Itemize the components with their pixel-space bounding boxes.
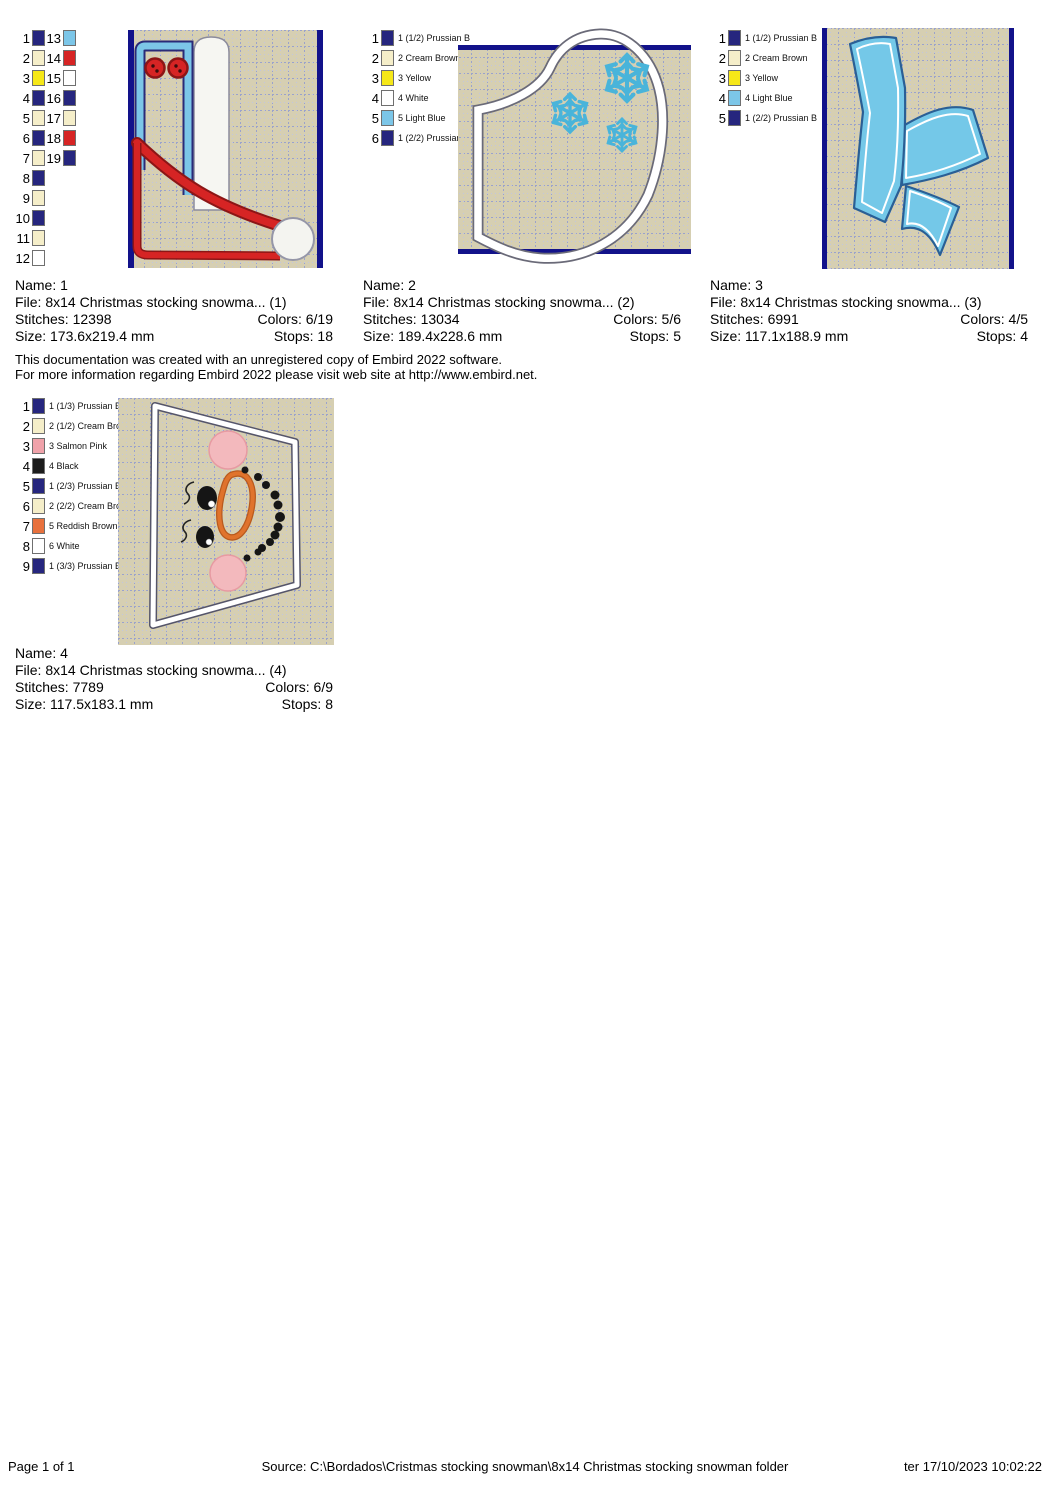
hoop-edge-left [822, 28, 827, 269]
thread-color-swatch [381, 30, 394, 46]
thread-color-swatch [32, 170, 45, 186]
design-1-info: Name: 1 File: 8x14 Christmas stocking sn… [15, 277, 333, 345]
design-file: File: 8x14 Christmas stocking snowma... … [15, 294, 333, 311]
thread-row: 7 [14, 148, 45, 168]
thread-color-swatch [63, 110, 76, 126]
thread-color-swatch [728, 50, 741, 66]
thread-number: 6 [363, 131, 379, 146]
thread-row: 4 [14, 88, 45, 108]
hat-white-band [194, 37, 229, 210]
design-stitches: Stitches: 12398 [15, 311, 112, 328]
thread-number: 7 [14, 519, 30, 534]
thread-number: 4 [14, 91, 30, 106]
design-file: File: 8x14 Christmas stocking snowma... … [363, 294, 681, 311]
design-size: Size: 117.1x188.9 mm [710, 328, 848, 345]
thread-number: 6 [14, 499, 30, 514]
thread-label: 4 Light Blue [745, 93, 793, 103]
thread-color-swatch [728, 110, 741, 126]
design-3-info: Name: 3 File: 8x14 Christmas stocking sn… [710, 277, 1028, 345]
thread-row: 3 [14, 68, 45, 88]
thread-number: 10 [14, 211, 30, 226]
thread-color-swatch [32, 50, 45, 66]
design-size: Size: 189.4x228.6 mm [363, 328, 502, 345]
thread-row: 11 (1/2) Prussian B [363, 28, 470, 48]
thread-number: 6 [14, 131, 30, 146]
thread-row: 18 [45, 128, 76, 148]
thread-number: 4 [363, 91, 379, 106]
thread-color-swatch [32, 110, 45, 126]
eye-bottom [196, 526, 214, 548]
thread-color-swatch [32, 538, 45, 554]
thread-row: 11 (1/3) Prussian B [14, 396, 121, 416]
thread-row: 12 [14, 248, 45, 268]
thread-number: 2 [710, 51, 726, 66]
thread-number: 15 [45, 71, 61, 86]
thread-row: 14 [45, 48, 76, 68]
design-colors: Colors: 6/19 [258, 311, 333, 328]
eye-top [197, 486, 217, 510]
hoop-edge-right [1009, 28, 1014, 269]
thread-color-swatch [381, 50, 394, 66]
thread-number: 1 [710, 31, 726, 46]
design-3-preview-scarf [822, 28, 1014, 269]
thread-number: 3 [14, 71, 30, 86]
thread-color-swatch [728, 30, 741, 46]
thread-number: 17 [45, 111, 61, 126]
cheek-top [209, 431, 247, 469]
thread-label: 1 (1/3) Prussian B [49, 401, 121, 411]
thread-number: 5 [710, 111, 726, 126]
thread-label: 2 (2/2) Cream Bro [49, 501, 121, 511]
design-name: Name: 3 [710, 277, 1028, 294]
design-stops: Stops: 8 [282, 696, 333, 713]
design-stops: Stops: 5 [630, 328, 681, 345]
thread-color-swatch [381, 110, 394, 126]
thread-row: 91 (3/3) Prussian B [14, 556, 121, 576]
thread-label: 2 Cream Brown [745, 53, 808, 63]
thread-number: 16 [45, 91, 61, 106]
thread-color-swatch [32, 458, 45, 474]
thread-number: 14 [45, 51, 61, 66]
thread-row: 44 Black [14, 456, 121, 476]
thread-row: 8 [14, 168, 45, 188]
thread-row: 33 Yellow [710, 68, 817, 88]
thread-number: 4 [14, 459, 30, 474]
design-2-palette: 11 (1/2) Prussian B22 Cream Brown33 Yell… [363, 28, 470, 148]
disclaimer-line-2: For more information regarding Embird 20… [15, 367, 537, 382]
hat-pompom [272, 218, 314, 260]
thread-number: 2 [14, 419, 30, 434]
thread-row: 11 [14, 228, 45, 248]
thread-number: 5 [14, 111, 30, 126]
thread-row: 16 [45, 88, 76, 108]
thread-number: 7 [14, 151, 30, 166]
thread-row: 62 (2/2) Cream Bro [14, 496, 121, 516]
thread-color-swatch [63, 50, 76, 66]
design-2-info: Name: 2 File: 8x14 Christmas stocking sn… [363, 277, 681, 345]
design-stitches: Stitches: 7789 [15, 679, 104, 696]
thread-number: 2 [14, 51, 30, 66]
thread-row: 86 White [14, 536, 121, 556]
design-colors: Colors: 4/5 [960, 311, 1028, 328]
thread-row: 61 (2/2) Prussian B [363, 128, 470, 148]
thread-row: 44 White [363, 88, 470, 108]
thread-label: 3 Salmon Pink [49, 441, 107, 451]
design-3-palette: 11 (1/2) Prussian B22 Cream Brown33 Yell… [710, 28, 817, 128]
thread-label: 2 (1/2) Cream Bro [49, 421, 121, 431]
thread-row: 33 Salmon Pink [14, 436, 121, 456]
thread-label: 1 (1/2) Prussian B [745, 33, 817, 43]
datetime: ter 17/10/2023 10:02:22 [904, 1459, 1042, 1474]
design-4-preview-snowman-face [118, 398, 334, 645]
design-name: Name: 1 [15, 277, 333, 294]
thread-color-swatch [32, 478, 45, 494]
thread-color-swatch [32, 30, 45, 46]
thread-color-swatch [32, 438, 45, 454]
thread-color-swatch [63, 150, 76, 166]
thread-number: 9 [14, 559, 30, 574]
thread-row: 6 [14, 128, 45, 148]
thread-color-swatch [728, 70, 741, 86]
thread-label: 5 Reddish Brown [49, 521, 118, 531]
source-path: Source: C:\Bordados\Cristmas stocking sn… [0, 1459, 1050, 1474]
thread-row: 15 [45, 68, 76, 88]
thread-row: 13 [45, 28, 76, 48]
thread-color-swatch [32, 558, 45, 574]
thread-number: 2 [363, 51, 379, 66]
thread-row: 44 Light Blue [710, 88, 817, 108]
thread-color-swatch [32, 398, 45, 414]
thread-label: 4 Black [49, 461, 79, 471]
thread-label: 3 Yellow [745, 73, 778, 83]
thread-row: 33 Yellow [363, 68, 470, 88]
thread-label: 3 Yellow [398, 73, 431, 83]
thread-color-swatch [381, 130, 394, 146]
design-stitches: Stitches: 13034 [363, 311, 460, 328]
thread-row: 22 (1/2) Cream Bro [14, 416, 121, 436]
cheek-bottom [210, 555, 246, 591]
thread-color-swatch [32, 130, 45, 146]
unregistered-disclaimer: This documentation was created with an u… [15, 352, 537, 382]
thread-number: 13 [45, 31, 61, 46]
thread-row: 17 [45, 108, 76, 128]
thread-label: 1 (2/3) Prussian B [49, 481, 121, 491]
thread-number: 12 [14, 251, 30, 266]
design-name: Name: 4 [15, 645, 333, 662]
thread-number: 3 [363, 71, 379, 86]
thread-number: 19 [45, 151, 61, 166]
thread-row: 51 (2/2) Prussian B [710, 108, 817, 128]
thread-color-swatch [32, 418, 45, 434]
design-1-palette-right: 13141516171819 [45, 28, 76, 168]
design-stops: Stops: 18 [274, 328, 333, 345]
thread-label: 2 Cream Brown [398, 53, 461, 63]
thread-label: 6 White [49, 541, 80, 551]
thread-number: 3 [710, 71, 726, 86]
design-stitches: Stitches: 6991 [710, 311, 799, 328]
thread-number: 8 [14, 171, 30, 186]
design-stops: Stops: 4 [977, 328, 1028, 345]
thread-number: 1 [14, 31, 30, 46]
thread-number: 9 [14, 191, 30, 206]
thread-number: 11 [14, 231, 30, 246]
thread-row: 1 [14, 28, 45, 48]
thread-color-swatch [32, 210, 45, 226]
design-file: File: 8x14 Christmas stocking snowma... … [15, 662, 333, 679]
thread-color-swatch [32, 518, 45, 534]
thread-number: 3 [14, 439, 30, 454]
thread-number: 1 [14, 399, 30, 414]
thread-number: 4 [710, 91, 726, 106]
thread-number: 18 [45, 131, 61, 146]
design-file: File: 8x14 Christmas stocking snowma... … [710, 294, 1028, 311]
thread-color-swatch [32, 190, 45, 206]
thread-color-swatch [381, 70, 394, 86]
thread-number: 5 [14, 479, 30, 494]
design-4-info: Name: 4 File: 8x14 Christmas stocking sn… [15, 645, 333, 713]
thread-number: 8 [14, 539, 30, 554]
thread-number: 5 [363, 111, 379, 126]
thread-row: 22 Cream Brown [363, 48, 470, 68]
thread-color-swatch [32, 90, 45, 106]
thread-color-swatch [32, 250, 45, 266]
thread-number: 1 [363, 31, 379, 46]
thread-color-swatch [63, 90, 76, 106]
hoop-edge-right [317, 30, 323, 268]
design-2-preview-stocking [455, 25, 692, 267]
thread-row: 9 [14, 188, 45, 208]
design-1-palette-left: 123456789101112 [14, 28, 45, 268]
thread-row: 22 Cream Brown [710, 48, 817, 68]
design-1-preview-santa-hat [128, 30, 323, 268]
thread-color-swatch [63, 130, 76, 146]
thread-color-swatch [381, 90, 394, 106]
thread-row: 5 [14, 108, 45, 128]
design-name: Name: 2 [363, 277, 681, 294]
thread-label: 5 Light Blue [398, 113, 446, 123]
design-size: Size: 117.5x183.1 mm [15, 696, 153, 713]
design-colors: Colors: 5/6 [613, 311, 681, 328]
thread-color-swatch [32, 150, 45, 166]
thread-label: 1 (2/2) Prussian B [745, 113, 817, 123]
thread-color-swatch [32, 498, 45, 514]
thread-color-swatch [63, 70, 76, 86]
thread-color-swatch [728, 90, 741, 106]
thread-row: 51 (2/3) Prussian B [14, 476, 121, 496]
thread-color-swatch [32, 70, 45, 86]
thread-row: 55 Light Blue [363, 108, 470, 128]
thread-row: 19 [45, 148, 76, 168]
thread-label: 1 (3/3) Prussian B [49, 561, 121, 571]
thread-color-swatch [32, 230, 45, 246]
thread-label: 4 White [398, 93, 429, 103]
thread-row: 2 [14, 48, 45, 68]
design-colors: Colors: 6/9 [265, 679, 333, 696]
thread-row: 75 Reddish Brown [14, 516, 121, 536]
disclaimer-line-1: This documentation was created with an u… [15, 352, 537, 367]
thread-color-swatch [63, 30, 76, 46]
design-4-palette: 11 (1/3) Prussian B22 (1/2) Cream Bro33 … [14, 396, 121, 576]
design-size: Size: 173.6x219.4 mm [15, 328, 154, 345]
thread-row: 10 [14, 208, 45, 228]
thread-row: 11 (1/2) Prussian B [710, 28, 817, 48]
